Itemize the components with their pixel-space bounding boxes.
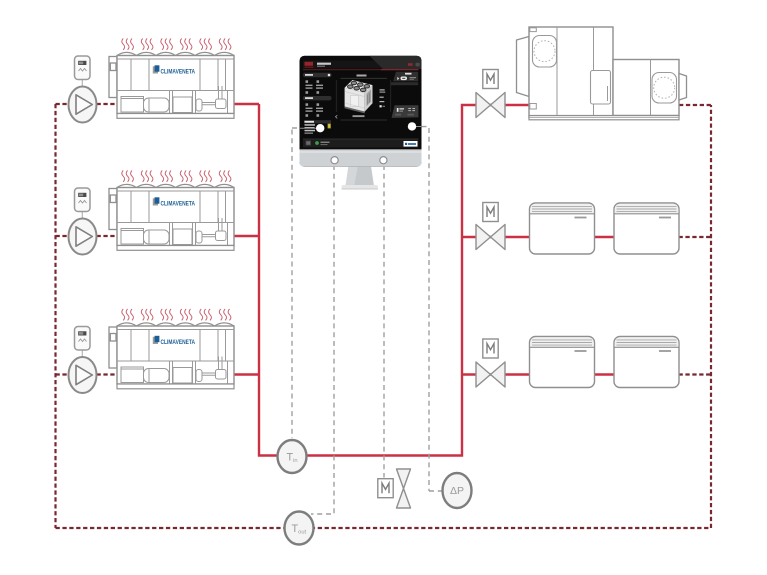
svg-text:ΔP: ΔP xyxy=(450,485,464,497)
